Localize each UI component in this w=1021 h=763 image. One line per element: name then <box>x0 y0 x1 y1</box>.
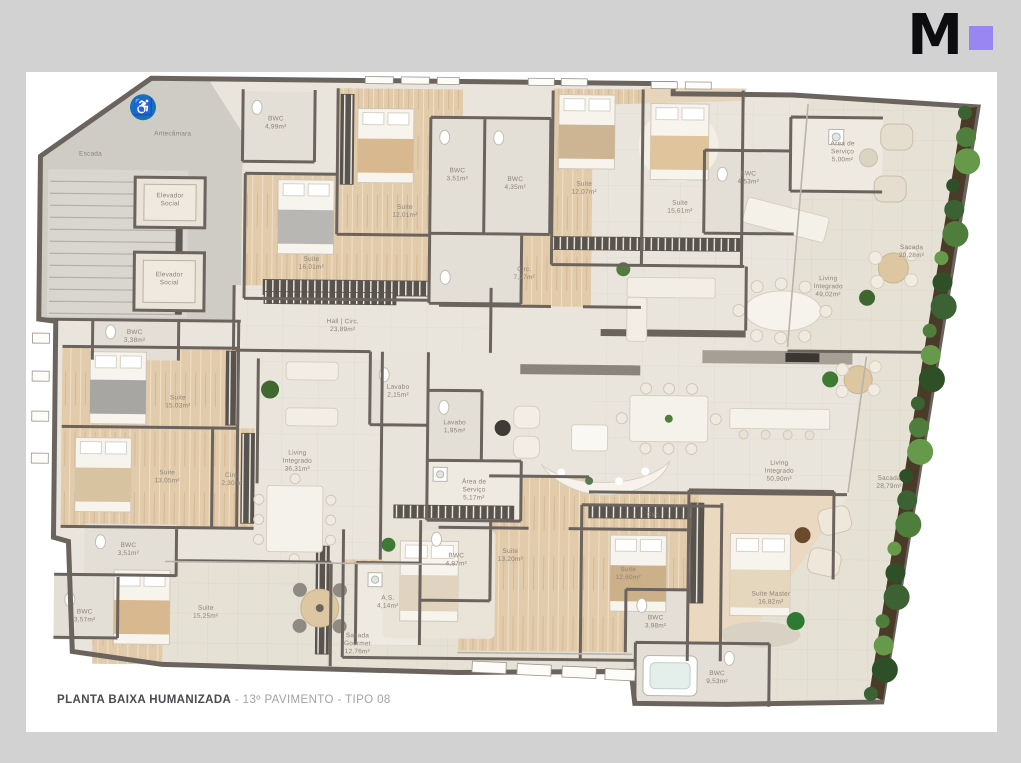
floorplan: ♿ EscadaAntecâmaraElevador SocialElevado… <box>27 71 984 719</box>
kitchen-island <box>730 408 830 429</box>
room-label-living-integrado-50-90: Living Integrado50,90m² <box>758 459 800 484</box>
room-label-elevador-social-2: Elevador Social <box>148 271 190 288</box>
room-label-suite-15-03: Suite15,03m² <box>165 394 190 411</box>
room-label-suite-15-25: Suite15,25m² <box>193 605 218 622</box>
floorplan-sheet: ♿ EscadaAntecâmaraElevador SocialElevado… <box>26 72 997 732</box>
room-label-bwc-3-38: BWC3,38m² <box>124 329 146 345</box>
room-label-circ-2-30: Circ.2,30m² <box>221 472 243 488</box>
room-label-suite-15-61: Suite15,61m² <box>667 200 692 217</box>
room-label-bwc-4-99: BWC4,99m² <box>265 115 287 131</box>
room-label-sacada-gourmet-12-76: Sacada Gourmet12,76m² <box>336 632 378 657</box>
room-label-as-4-14: A.S.4,14m² <box>377 595 399 611</box>
media-console <box>520 364 640 375</box>
room-label-circ-b: Circ. <box>647 511 661 519</box>
room-label-suite-13-05: Suite13,05m² <box>154 469 179 486</box>
room-label-suite-master-16-82: Suite Master16,82m² <box>751 590 790 607</box>
room-label-bwc-4-53: BWC4,53m² <box>737 170 759 186</box>
room-label-suite-16-01: Suite16,01m² <box>299 256 324 273</box>
room-label-bwc-4-97: BWC4,97m² <box>445 552 467 568</box>
room-label-elevador-social-1: Elevador Social <box>149 192 191 209</box>
room-label-suite-12-01: Suite12,01m² <box>392 204 417 221</box>
room-label-sacada-20-28: Sacada20,28m² <box>899 244 924 261</box>
room-label-suite-12-07: Suite12,07m² <box>571 181 596 198</box>
room-label-antecamara: Antecâmara <box>154 130 191 139</box>
room-label-bwc-3-98: BWC3,98m² <box>645 614 667 630</box>
coffee-table <box>571 425 607 451</box>
caption-title: PLANTA BAIXA HUMANIZADA <box>57 694 231 706</box>
page: { "brand": { "letter": "M", "accent_colo… <box>0 0 1021 763</box>
room-label-lavabo-1-95: Lavabo1,95m² <box>443 419 466 435</box>
accessibility-icon: ♿ <box>130 94 156 120</box>
room-label-sacada-28-79: Sacada28,79m² <box>876 475 901 492</box>
room-label-bwc-3-51-b: BWC3,51m² <box>118 542 140 558</box>
room-label-suite-12-60: Suite12,60m² <box>615 566 640 583</box>
room-label-escada: Escada <box>79 150 102 158</box>
brand-accent-square <box>969 26 993 50</box>
sofa <box>286 362 338 381</box>
room-label-circ-7-27: Circ.7,27m² <box>513 266 535 282</box>
room-label-bwc-3-51-a: BWC3,51m² <box>446 167 468 183</box>
gourmet-table <box>292 583 347 634</box>
sofa <box>286 408 338 427</box>
room-label-suite-13-20: Suite13,20m² <box>498 548 523 565</box>
brand-logo: M <box>907 8 993 64</box>
room-label-living-integrado-36-31: Living Integrado36,31m² <box>276 449 318 474</box>
caption-subtitle: - 13º PAVIMENTO - TIPO 08 <box>231 694 390 706</box>
sofa <box>627 277 715 298</box>
armchair <box>514 406 540 428</box>
sofa <box>627 297 647 341</box>
caption: PLANTA BAIXA HUMANIZADA - 13º PAVIMENTO … <box>57 694 391 706</box>
room-label-hall-circ-23-89: Hall | Circ.23,89m² <box>326 318 358 335</box>
room-label-bwc-9-53: BWC9,53m² <box>706 670 728 686</box>
room-label-bwc-4-35: BWC4,35m² <box>504 176 526 192</box>
room-label-bwc-3-57: BWC3,57m² <box>74 608 96 624</box>
dining-table <box>266 486 323 553</box>
room-label-lavabo-2-15: Lavabo2,15m² <box>387 384 410 400</box>
room-label-area-servico-5-00: Área de Serviço5,00m² <box>821 140 863 165</box>
brand-logo-letter: M <box>907 8 960 64</box>
accessibility-glyph: ♿ <box>133 97 153 117</box>
room-label-area-servico-5-17: Área de Serviço5,17m² <box>453 478 495 503</box>
armchair <box>513 436 539 458</box>
room-label-living-integrado-49-02: Living Integrado49,02m² <box>807 275 849 300</box>
